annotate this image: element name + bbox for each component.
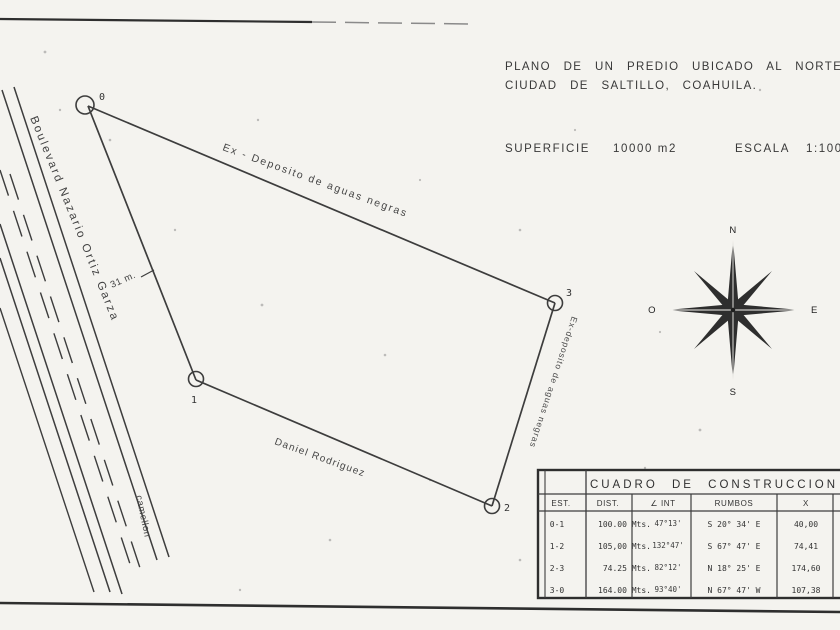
vertex-label-3: 3 [566,288,572,299]
cell-dist: 74.25 Mts. [603,564,651,573]
vertex-label-0: 0 [99,92,105,103]
col-header-est: EST. [551,499,570,508]
col-header-rumbos: RUMBOS [715,499,754,508]
road-name-label: Boulevard Nazario Ortiz Garza [27,115,121,324]
table-row: 3-0 164.00 Mts. 93°40' N 67° 47' W 107,3… [550,585,821,595]
cell-est: 3-0 [550,586,565,595]
cell-x: 174,60 [792,564,821,573]
road-edge-line [2,90,157,560]
cell-ang: 93°40' [654,585,681,594]
frame-top-line-faded [312,22,470,24]
col-header-dist: DIST. [597,499,620,508]
frame-top-line [0,19,312,22]
superficie-value: 10000 m2 [613,143,677,155]
col-header-ang: ∠ INT [650,499,675,508]
edge-1-2 [196,380,492,506]
cell-rumbo: S 20° 34' E [708,520,761,529]
cell-dist: 164.00 Mts. [598,586,651,595]
cell-est: 2-3 [550,564,565,573]
cell-rumbo: N 18° 25' E [708,564,761,573]
vertex-label-2: 2 [504,503,510,514]
compass-north-label: N [729,225,736,236]
cell-dist: 100.00 Mts. [598,520,651,529]
edge-label-bottom: Daniel Rodriguez [273,436,367,479]
table-row: 2-3 74.25 Mts. 82°12' N 18° 25' E 174,60 [550,563,821,573]
cell-ang: 82°12' [654,563,681,572]
cell-x: 40,00 [794,520,818,529]
cell-rumbo: S 67° 47' E [708,542,761,551]
road-edge-line [14,87,169,557]
vertex-label-1: 1 [191,395,197,406]
survey-plan-canvas: PLANO DE UN PREDIO UBICADO AL NORTE DE L… [0,0,840,630]
cell-ang: 47°13' [654,519,681,528]
parcel-polygon: 31 m. 0 1 2 3 Ex - Deposito de aguas neg… [76,92,580,514]
boulevard-road: Boulevard Nazario Ortiz Garza camellon [0,87,169,594]
road-width-label: 31 m. [109,270,138,291]
cell-x: 107,38 [792,586,821,595]
edge-label-top: Ex - Deposito de aguas negras [221,142,410,220]
cell-dist: 105,00 Mts. [598,542,651,551]
cell-rumbo: N 67° 47' W [708,586,761,595]
scan-noise [44,51,762,592]
vertex-marker-0 [76,96,94,114]
frame-bottom-line [0,603,840,612]
cell-x: 74,41 [794,542,818,551]
superficie-label: SUPERFICIE [505,143,590,155]
compass-east-label: E [811,305,818,316]
edge-0-1 [88,106,196,380]
compass-rose-icon: N S E O [648,225,818,398]
escala-label: ESCALA [735,143,790,155]
plan-title-line1: PLANO DE UN PREDIO UBICADO AL NORTE DE L… [505,61,840,73]
escala-value: 1:1000 [806,143,840,155]
scanned-survey-plan: PLANO DE UN PREDIO UBICADO AL NORTE DE L… [0,0,840,630]
road-edge-line [0,308,94,592]
cell-est: 0-1 [550,520,565,529]
cell-est: 1-2 [550,542,565,551]
col-header-x: X [803,499,809,508]
table-row: 1-2 105,00 Mts. 132°47' S 67° 47' E 74,4… [550,541,818,551]
edge-3-0 [88,106,555,303]
cell-ang: 132°47' [652,541,684,550]
table-title: CUADRO DE CONSTRUCCION [590,479,838,491]
title-block: PLANO DE UN PREDIO UBICADO AL NORTE DE L… [505,61,840,155]
compass-west-label: O [648,305,656,316]
table-row: 0-1 100.00 Mts. 47°13' S 20° 34' E 40,00 [550,519,818,529]
edge-label-right: Ex-deposito de aguas negras [528,315,580,449]
compass-south-label: S [730,387,737,398]
dimension-tick [141,270,154,277]
plan-title-line2: CIUDAD DE SALTILLO, COAHUILA. [505,80,757,92]
construction-table: CUADRO DE CONSTRUCCION EST. DIST. ∠ INT … [538,470,840,598]
